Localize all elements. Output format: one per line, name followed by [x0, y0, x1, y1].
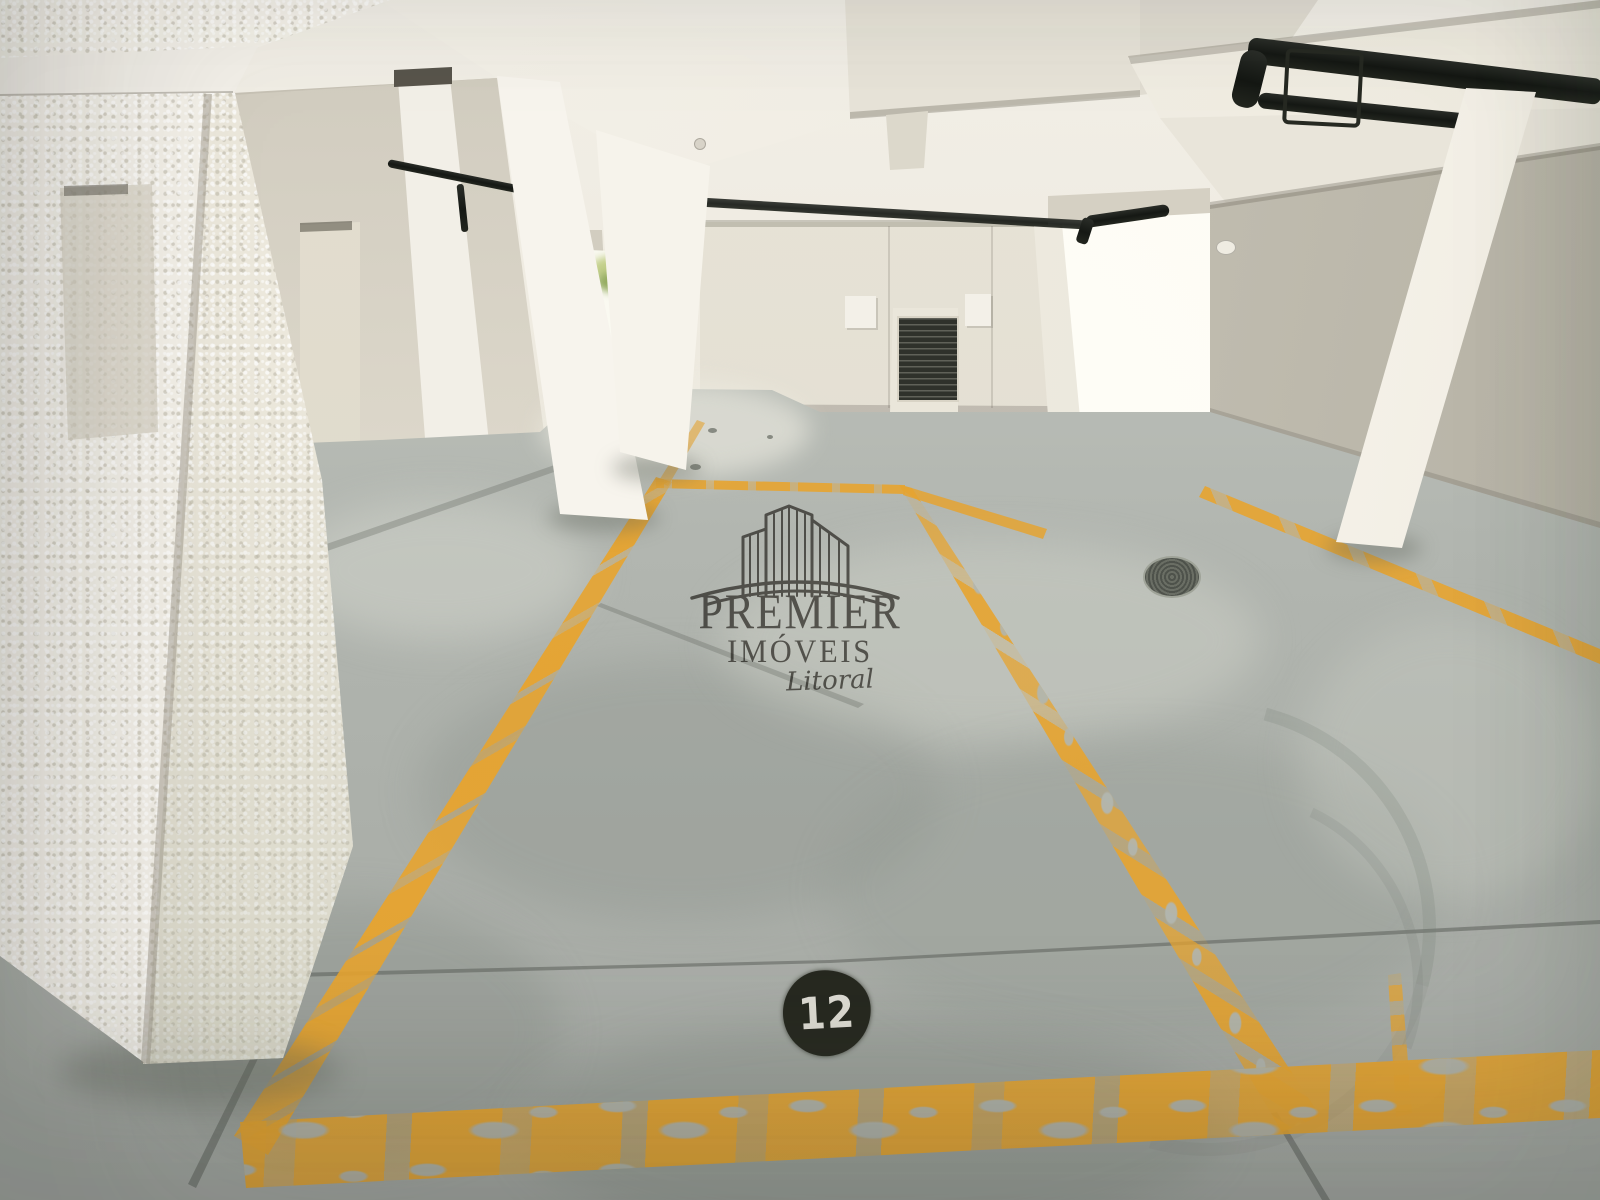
garage-photo: 12 — [0, 0, 1600, 1200]
ventilation-grille — [897, 316, 959, 402]
spot-number: 12 — [797, 986, 857, 1040]
wall-panel-seam — [991, 226, 993, 408]
electrical-box — [845, 296, 876, 328]
electrical-box — [965, 294, 991, 326]
watermark: PREMIER IMÓVEIS Litoral — [650, 494, 950, 704]
floor-mark — [767, 435, 773, 439]
wall-panel-seam — [888, 226, 890, 408]
floor-light-patch — [290, 500, 590, 640]
brand-tagline: Litoral — [760, 664, 901, 699]
floor-drain — [1143, 556, 1201, 598]
brand-name: PREMIER — [668, 582, 932, 640]
conduit-loop — [1282, 48, 1364, 128]
sprinkler-head — [694, 138, 706, 150]
floor-mark — [708, 428, 717, 433]
junction-box — [1216, 240, 1236, 255]
